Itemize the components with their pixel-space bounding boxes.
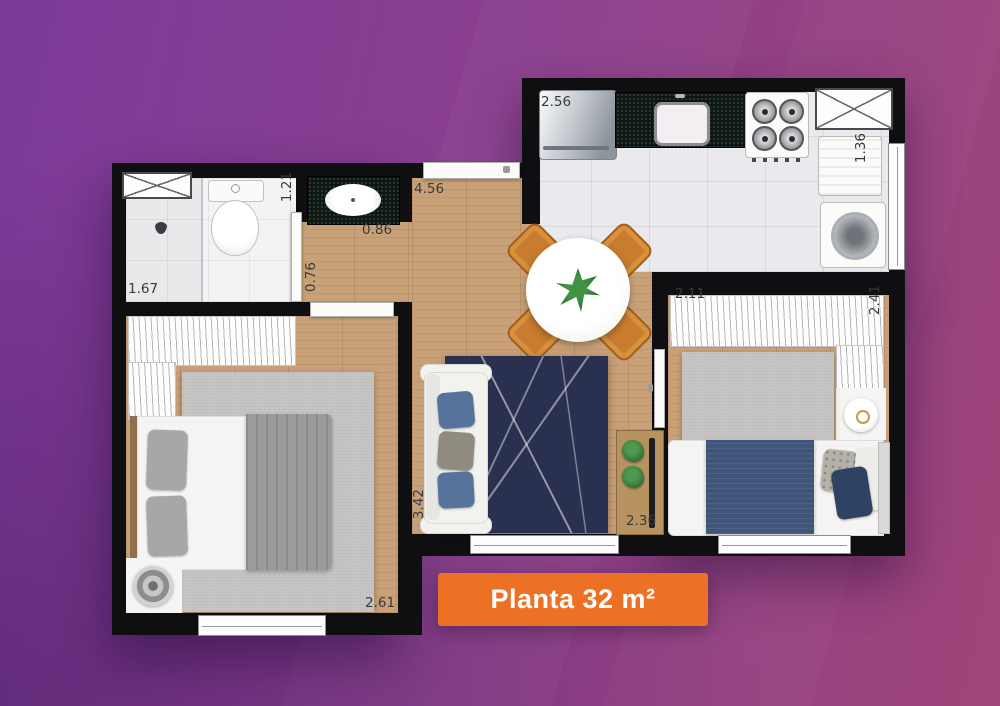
sofa-pillow-gray bbox=[437, 431, 476, 471]
kitchen-faucet-icon bbox=[675, 94, 685, 98]
stove-burner bbox=[752, 99, 777, 124]
measurement-bath-depth: 1.21 bbox=[279, 172, 295, 202]
washing-machine-drum bbox=[831, 212, 879, 260]
measurement-corridor-width: 0.76 bbox=[303, 262, 319, 292]
bedside-table-decor bbox=[856, 410, 870, 424]
bedroom2-door-handle bbox=[648, 384, 653, 392]
toilet-bowl bbox=[211, 200, 259, 256]
bedroom2-wardrobe-top bbox=[670, 295, 884, 347]
bed2-pillow-navy bbox=[830, 465, 873, 520]
stove-burner bbox=[779, 99, 804, 124]
measurement-bedroom2-width: 2.11 bbox=[675, 286, 705, 302]
laundry-window bbox=[888, 143, 905, 270]
bedroom1-door bbox=[310, 302, 394, 317]
bed2-headboard bbox=[878, 442, 890, 534]
kitchen-sink bbox=[654, 102, 710, 146]
fridge-handle bbox=[543, 146, 609, 150]
shaft-box-kitchen bbox=[815, 88, 893, 130]
entry-door-handle bbox=[503, 166, 510, 173]
shower-head-icon bbox=[155, 216, 167, 234]
measurement-kitchen-width: 2.56 bbox=[541, 94, 571, 110]
bathroom-sink-drain bbox=[351, 198, 355, 202]
toilet-flush-button bbox=[231, 184, 240, 193]
living-window bbox=[470, 535, 619, 554]
stove bbox=[745, 92, 809, 158]
measurement-bath-vanity: 0.86 bbox=[362, 222, 392, 238]
bed1-pillow bbox=[146, 429, 188, 490]
laundry-tank bbox=[818, 136, 882, 196]
area-badge-label: Planta 32 m² bbox=[490, 584, 655, 615]
bedroom2-window bbox=[718, 535, 851, 554]
rack-plant-icon bbox=[622, 440, 644, 462]
bedroom1-window bbox=[198, 615, 326, 636]
rack-plant-icon-2 bbox=[622, 466, 644, 488]
area-badge: Planta 32 m² bbox=[438, 573, 708, 626]
bedroom2-door bbox=[654, 349, 665, 428]
bedroom1-wardrobe-top bbox=[128, 316, 296, 366]
sofa-pillow-blue bbox=[436, 390, 475, 429]
bed1-pillow-2 bbox=[146, 495, 188, 556]
bathroom-door bbox=[291, 212, 302, 302]
measurement-shower-width: 1.67 bbox=[128, 281, 158, 297]
bed2-blanket bbox=[706, 440, 814, 534]
measurement-laundry-width: 1.36 bbox=[853, 133, 869, 163]
shaft-box-bathroom bbox=[122, 172, 192, 199]
measurement-bedroom1-width: 2.61 bbox=[365, 595, 395, 611]
measurement-living-depth: 3.42 bbox=[411, 489, 427, 519]
bedroom1-wardrobe-side bbox=[128, 362, 176, 420]
stove-knobs bbox=[752, 158, 800, 162]
stove-burner bbox=[779, 126, 804, 151]
measurement-hall-length: 4.56 bbox=[414, 181, 444, 197]
wall-kitchen-left bbox=[522, 78, 540, 224]
sofa-pillow-blue-2 bbox=[437, 471, 475, 509]
floor-fan-icon bbox=[133, 566, 173, 606]
shower-divider bbox=[201, 178, 203, 302]
bed1-duvet bbox=[246, 414, 332, 570]
stove-burner bbox=[752, 126, 777, 151]
floorplan-scene: 2.56 1.36 4.56 0.86 1.21 1.67 0.76 3.42 … bbox=[0, 0, 1000, 706]
measurement-living-width: 2.36 bbox=[626, 513, 656, 529]
measurement-bedroom2-depth: 2.41 bbox=[867, 285, 883, 315]
